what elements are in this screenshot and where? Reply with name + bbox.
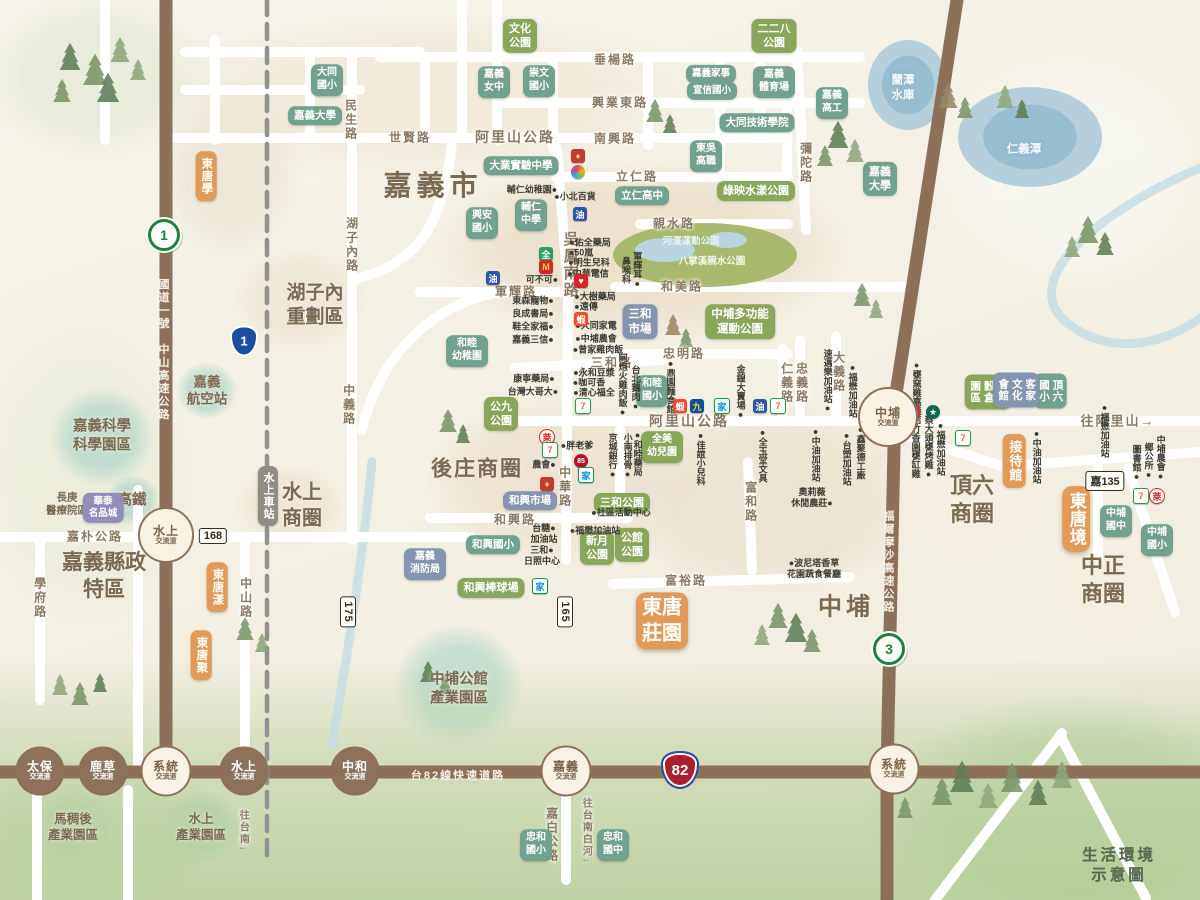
interchange-name: 嘉義 [553, 761, 579, 774]
school-chip: 和興國小 [466, 535, 520, 554]
district-label: 嘉義 航空站 [187, 374, 228, 409]
park-chip: 二二八 公園 [752, 19, 797, 53]
poi-label: 中埔農會● [1154, 435, 1165, 481]
park-chip: 全美 幼兒園 [641, 431, 683, 463]
project-chip: 東唐學 [196, 151, 217, 201]
interchange-name: 鹿草 [90, 761, 116, 774]
road-label: 中華路 [556, 466, 571, 508]
school-chip: 嘉義 大學 [863, 162, 897, 196]
interchange-marker: 水上交流道 [138, 507, 194, 563]
highway-label: 福爾摩沙高速公路 [881, 510, 895, 614]
poi-label: ●中油加油站 [1030, 429, 1041, 484]
school-chip: 宣信國小 [687, 82, 737, 100]
road-label: 往阿里山→ [1080, 414, 1155, 431]
district-label: 水上 商圈 [282, 480, 322, 531]
park-chip: 綠映水漾公園 [717, 181, 795, 201]
road-label: 富和路 [742, 481, 757, 523]
road-label: 彌陀路 [797, 142, 812, 184]
interchange-suffix: 交流道 [345, 774, 366, 782]
route-badge-shield-blue: 1 [232, 328, 256, 355]
poi-label: 金鍠大賣場● [734, 365, 745, 420]
map-canvas: 嘉義市湖子內 重劃區後庄商圈嘉義縣政 特區水上 商圈頂六 商圈中正 商圈中埔馬稠… [0, 0, 1200, 900]
poi-label: 京城銀行● [606, 433, 617, 479]
school-chip: 嘉義 女中 [478, 66, 510, 98]
road-label: 南興路 [594, 131, 636, 146]
poi-label: 圖書館● [1130, 445, 1141, 482]
shopee-icon: 蝦 [574, 312, 588, 326]
school-chip: 忠和 國小 [520, 829, 552, 861]
pxmart-icon: 全 [539, 247, 553, 261]
school-chip: 和睦 幼稚園 [446, 335, 488, 367]
map-labels-layer: 嘉義市湖子內 重劃區後庄商圈嘉義縣政 特區水上 商圈頂六 商圈中正 商圈中埔馬稠… [0, 0, 1200, 900]
district-label: 中正 商圈 [1081, 552, 1125, 608]
interchange-suffix: 交流道 [234, 774, 255, 782]
poi-label: ●福懋加油站 [846, 363, 857, 418]
poi-label: 阿炮火雞肉飯● [616, 353, 627, 417]
district-label: 嘉義市 [383, 168, 482, 204]
road-label: 往台南↓ [236, 810, 249, 853]
interchange-name: 系統 [153, 761, 179, 774]
road-label: 中山路 [237, 577, 252, 619]
school-chip: 大業實驗中學 [484, 156, 559, 175]
poi-label: ●台塑加油站 [840, 431, 851, 486]
district-label: 水上 產業園區 [176, 811, 226, 843]
project-chip: 東唐境 [1062, 486, 1090, 552]
interchange-name: 水上 [153, 525, 179, 538]
school-chip: 輔仁 中學 [515, 199, 547, 231]
interchange-marker: 嘉義交流道 [541, 746, 592, 797]
school-chip: 嘉義 高工 [816, 87, 848, 119]
school-chip: 和睦 國小 [636, 375, 668, 407]
park-chip: 中埔多功能 運動公園 [705, 304, 775, 339]
route-badge-county: 嘉135 [1085, 471, 1124, 491]
mcdonalds-icon: M [539, 260, 553, 274]
poi-label: ●中埔農會 [575, 333, 616, 344]
district-label: 長庚 醫療院區 [46, 492, 88, 519]
road-label: 嘉朴公路 [67, 529, 123, 544]
school-chip: 嘉義 體育場 [753, 66, 795, 98]
pharmacy-heart-icon: ♥ [574, 274, 588, 288]
interchange-suffix: 交流道 [93, 774, 114, 782]
road-label: 忠義路 [793, 362, 808, 404]
interchange-marker: 系統交流道 [141, 746, 192, 797]
lake-label: 仁義潭 [1007, 143, 1042, 158]
poi-label: 三和● 日照中心 [524, 545, 560, 568]
school-chip: 忠和 國中 [597, 829, 629, 861]
interchange-name: 太保 [27, 761, 53, 774]
road-label: 往台南白河↓ [579, 798, 592, 865]
poi-label: ●中油加油站 [809, 427, 820, 482]
route-badge-shield-red: 82 [661, 751, 699, 789]
poi-label: 軍輝耳● 鼻喉科 [620, 252, 643, 289]
road-label: 世賢路 [389, 130, 431, 145]
route-badge-county: 168 [199, 528, 227, 544]
interchange-marker: 水上交流道 [220, 747, 269, 796]
facility-chip: 嘉義 消防局 [404, 548, 446, 580]
road-label: 民生路 [342, 99, 357, 141]
interchange-name: 中和 [342, 761, 368, 774]
poi-label: 東森寵物● [512, 295, 553, 306]
85c-cafe-icon: 85 [574, 454, 588, 468]
hilife-icon: 萊 [1149, 488, 1165, 504]
school-chip: 興安 國小 [466, 207, 498, 239]
interchange-name: 中埔 [875, 407, 901, 420]
interchange-suffix: 交流道 [878, 420, 899, 428]
park-label: 河濱運動公園 [662, 236, 719, 248]
road-label: 阿里山公路 [475, 129, 555, 147]
poi-label: ●福懋加油站 [1098, 403, 1109, 458]
map-caption: 生活環境示意圖 [1079, 846, 1160, 886]
poi-label: 奧莉薇 休閒農莊● [791, 487, 832, 510]
school-chip: 立仁高中 [615, 186, 669, 205]
district-label: 湖子內 重劃區 [286, 282, 343, 331]
project-chip: 東唐漾 [207, 562, 228, 612]
poi-label: 嘉義三信● [512, 334, 553, 345]
district-label: 頂六 商圈 [950, 472, 994, 528]
poi-label: 可不可● [526, 274, 558, 285]
school-chip: 中埔 國中 [1100, 505, 1132, 537]
poi-label: ●福懋加油站 [570, 525, 620, 536]
nine-stationery-icon: 九 [690, 399, 704, 413]
seven-eleven-icon: 7 [1133, 488, 1149, 504]
poi-label: 台糖● 加油站 [530, 523, 557, 546]
cpc-gas-icon: 油 [573, 207, 587, 221]
interchange-marker: 中和交流道 [331, 747, 380, 796]
poi-label: 蔡大頭甕烤雞● [922, 415, 933, 479]
school-chip: 大同技術學院 [720, 113, 795, 132]
shopee-icon: 蝦 [673, 399, 687, 413]
poi-label: ●胖老爹 [561, 440, 593, 451]
seven-eleven-icon: 7 [575, 398, 591, 414]
school-chip: 中埔 國小 [1141, 524, 1173, 556]
road-label: 阿里山公路 [649, 413, 729, 431]
poi-label: 速邁樂加油站● [821, 349, 832, 413]
familymart-icon: 家 [714, 398, 730, 414]
seven-eleven-icon: 7 [955, 430, 971, 446]
poi-label: 農會● [532, 459, 555, 470]
poi-label: 良成書局● [512, 308, 553, 319]
road-label: 中義路 [340, 384, 355, 426]
road-label: 親水路 [653, 216, 695, 231]
school-chip: 東吳 高職 [690, 140, 722, 172]
district-label: 中埔公館 產業園區 [430, 670, 488, 707]
interchange-suffix: 交流道 [556, 774, 577, 782]
poi-label: ●遠傳 [574, 301, 597, 312]
train-station-chip: 水上車站 [258, 466, 278, 526]
brand-crest-icon: ♦ [571, 149, 585, 163]
district-label: 嘉義縣政 特區 [62, 550, 146, 604]
poi-label: 康寧藥局● [513, 373, 554, 384]
highway-label: 國道一號 中山高速公路 [156, 279, 170, 422]
interchange-suffix: 交流道 [156, 538, 177, 546]
poi-label: ●和睦藥局 [631, 430, 642, 476]
interchange-name: 系統 [881, 759, 907, 772]
park-chip: 公九 公園 [484, 397, 518, 431]
district-label: 馬稠後 產業園區 [48, 811, 98, 843]
school-chip: 嘉義家事 [686, 65, 736, 83]
poi-label: ●清心福全 [573, 387, 614, 398]
road-label: 立仁路 [616, 169, 658, 184]
district-label: 後庄商圈 [431, 457, 523, 484]
interchange-suffix: 交流道 [884, 772, 905, 780]
highway-label: 台82線快速道路 [411, 769, 505, 783]
poi-label: ●明生兒科 [568, 257, 609, 268]
project-chip: 東唐 莊園 [636, 592, 688, 649]
seven-eleven-icon: 7 [542, 442, 558, 458]
school-chip: 嘉義大學 [288, 106, 342, 125]
interchange-marker: 中埔交流道 [858, 387, 918, 447]
route-badge-plum: 3 [873, 633, 905, 665]
poi-label: 鞋全家福● [512, 321, 553, 332]
facility-chip: 和興市場 [503, 491, 557, 510]
starbucks-icon: ★ [926, 405, 940, 419]
district-label: 嘉義科學 科學園區 [73, 417, 131, 454]
poi-label: 鄉公所● [1142, 443, 1153, 480]
facility-chip: 客家 文化 會館 [993, 373, 1039, 408]
cpc-gas-icon: 油 [753, 399, 767, 413]
interchange-marker: 鹿草交流道 [79, 747, 128, 796]
project-chip: 東唐聚 [191, 630, 212, 680]
mall-chip: 華泰 名品城 [83, 493, 124, 523]
poi-label: 台灣大哥大● [508, 386, 558, 397]
familymart-icon: 家 [532, 578, 548, 594]
route-badge-county: 165 [557, 596, 573, 627]
route-badge-county: 175 [340, 596, 356, 627]
road-label: 垂楊路 [594, 52, 636, 67]
poi-label: ●佳誼小兒科 [694, 431, 705, 486]
school-chip: 崇文 國小 [523, 65, 555, 97]
familymart-icon: 家 [578, 467, 594, 483]
road-label: 富裕路 [665, 573, 707, 588]
route-badge-plum: 1 [148, 219, 180, 251]
interchange-suffix: 交流道 [156, 774, 177, 782]
poya-icon [571, 165, 585, 179]
poi-label: ●全玉堂文具 [756, 428, 767, 483]
poi-label: ●小北百貨 [554, 191, 595, 202]
poi-label: 輔仁幼稚園● [507, 184, 557, 195]
facility-chip: 三和 市場 [623, 304, 658, 339]
cpc-gas-icon: 油 [486, 271, 500, 285]
district-label: 中埔 [818, 593, 874, 624]
project-chip: 接待館 [1003, 434, 1026, 488]
brand-crest-icon: ♦ [540, 477, 554, 491]
road-label: 和美路 [661, 279, 703, 294]
poi-label: ●福懋加油站 [934, 421, 945, 476]
road-label: 湖子內路 [343, 217, 358, 273]
interchange-suffix: 交流道 [30, 774, 51, 782]
park-chip: 文化 公園 [503, 19, 537, 53]
park-label: 八掌溪親水公園 [679, 256, 746, 268]
road-label: 學府路 [31, 577, 46, 619]
interchange-marker: 太保交流道 [16, 747, 65, 796]
road-label: 興業東路 [592, 95, 648, 110]
seven-eleven-icon: 7 [770, 398, 786, 414]
poi-label: ●波尼塔香草 花園蔬食餐廳 [787, 558, 841, 581]
park-chip: 和興棒球場 [458, 578, 525, 598]
poi-label: ●社區活動中心 [591, 507, 650, 518]
school-chip: 大同 國小 [311, 64, 343, 96]
poi-label: 台北鵝肉● [629, 365, 640, 411]
interchange-name: 水上 [231, 761, 257, 774]
interchange-marker: 系統交流道 [869, 744, 920, 795]
lake-label: 蘭潭 水庫 [892, 73, 915, 102]
